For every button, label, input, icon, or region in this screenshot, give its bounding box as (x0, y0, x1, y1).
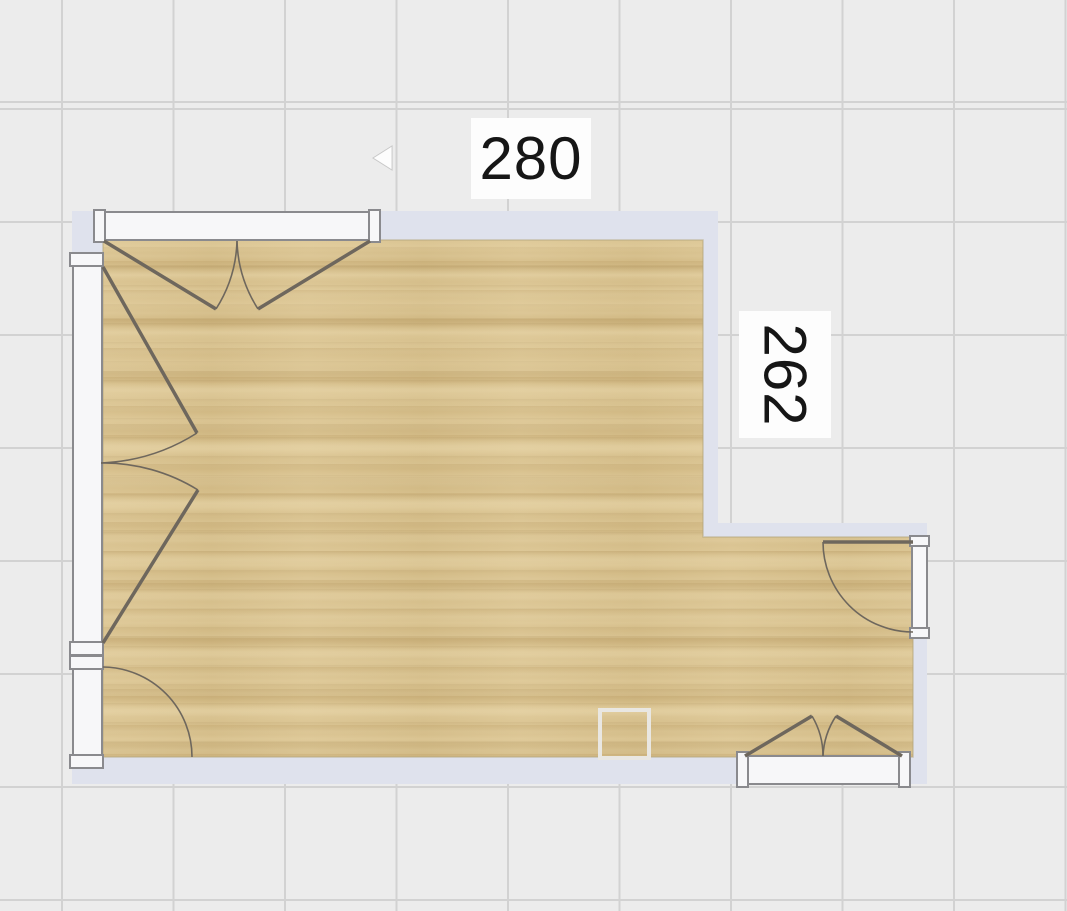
double-door-bottom-right-arc (823, 716, 836, 756)
double-door-left-upper-leaf[interactable] (103, 267, 197, 433)
french-door-top-right-leaf[interactable] (258, 241, 370, 309)
french-door-top-frame-cap-2 (369, 210, 380, 242)
door-right-arc (823, 542, 913, 632)
double-door-left-upper-arc (101, 433, 197, 463)
window-left-frame[interactable] (73, 659, 102, 767)
double-door-left-lower-leaf[interactable] (103, 490, 198, 643)
wall-notch-vertical[interactable] (703, 211, 718, 537)
dimension-label-height-text: 262 (755, 323, 815, 426)
window-left-frame-cap-2 (70, 755, 103, 768)
window-left-frame-cap-1 (70, 656, 103, 669)
cursor-icon (373, 146, 392, 170)
french-door-top-left-arc (216, 241, 237, 309)
double-door-bottom-left-leaf[interactable] (745, 716, 812, 756)
double-door-bottom-left-arc (812, 716, 823, 756)
double-door-bottom-frame-cap-2 (899, 752, 910, 787)
double-door-left-frame-cap-2 (70, 642, 103, 655)
french-door-top-frame[interactable] (94, 212, 380, 240)
double-door-left-frame-cap-1 (70, 253, 103, 266)
double-door-left-lower-arc (101, 463, 198, 490)
double-door-bottom-right-leaf[interactable] (836, 716, 902, 756)
double-door-bottom-frame-cap-1 (737, 752, 748, 787)
floorplan-canvas[interactable]: 280 262 (0, 0, 1067, 911)
dimension-label-width-text: 280 (479, 129, 582, 189)
dimension-label-width: 280 (471, 118, 591, 199)
dimension-label-height: 262 (739, 311, 831, 438)
french-door-top-frame-cap-1 (94, 210, 105, 242)
window-left-arc (103, 667, 192, 757)
door-right-frame[interactable] (912, 537, 927, 638)
double-door-left-frame[interactable] (73, 256, 102, 655)
double-door-bottom-frame[interactable] (737, 756, 910, 784)
column[interactable] (600, 710, 649, 758)
door-right-frame-cap-2 (910, 628, 929, 638)
french-door-top-right-arc (237, 241, 258, 309)
wall-notch-horizontal[interactable] (703, 523, 927, 537)
